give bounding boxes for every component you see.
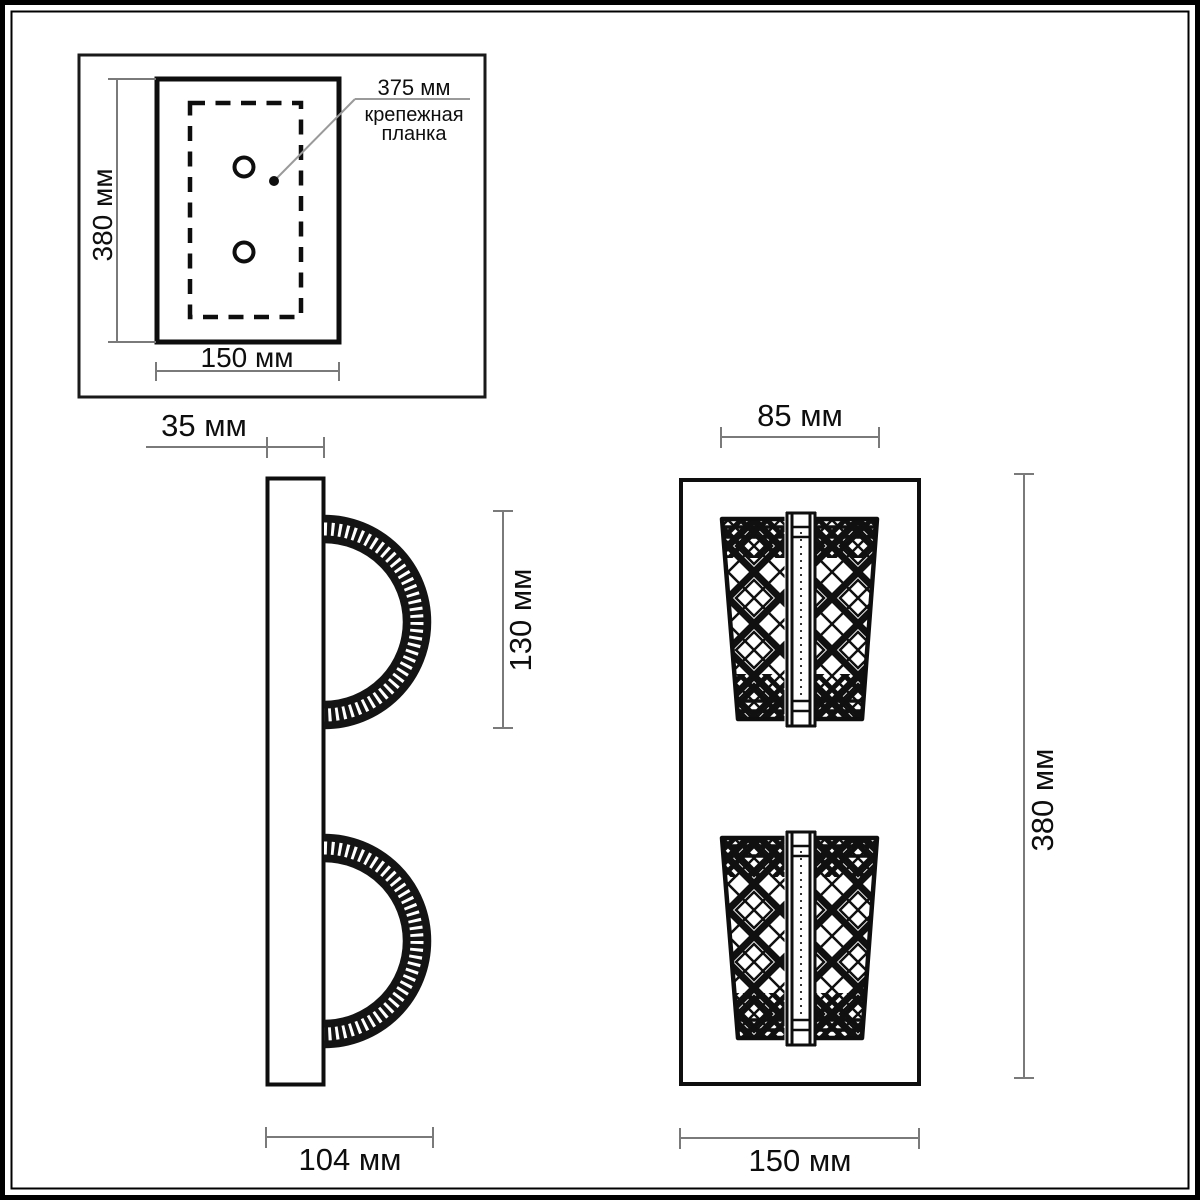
- annotation-leader-dot: [269, 176, 279, 186]
- shade-width-label: 85 мм: [757, 398, 843, 433]
- wall-plate-side-outline: [268, 479, 324, 1085]
- front-view: 85 мм: [680, 398, 1060, 1178]
- front-width-label: 150 мм: [749, 1143, 852, 1178]
- plate-depth-label: 35 мм: [161, 408, 247, 443]
- side-view: 35 мм 130 мм 104 мм: [146, 408, 538, 1177]
- backplate-outline: [157, 79, 339, 342]
- lamp-height-label: 130 мм: [503, 569, 538, 672]
- bracket-length-label: 375 мм: [377, 75, 450, 100]
- total-depth-label: 104 мм: [299, 1142, 402, 1177]
- upper-shade-front: [710, 510, 890, 730]
- upper-lamp-side-ring: [324, 516, 430, 728]
- mount-width-label: 150 мм: [201, 342, 294, 373]
- mount-height-label: 380 мм: [87, 169, 118, 262]
- lower-lamp-side-ring: [324, 835, 430, 1047]
- mount-detail-panel: 380 мм 150 мм 375 мм крепежная планка: [79, 55, 485, 397]
- lower-shade-front: [710, 829, 890, 1049]
- front-height-label: 380 мм: [1025, 749, 1060, 852]
- bracket-caption-line2: планка: [382, 123, 448, 145]
- dimension-drawing-canvas: 380 мм 150 мм 375 мм крепежная планка 35…: [0, 0, 1200, 1200]
- technical-drawing-page: 380 мм 150 мм 375 мм крепежная планка 35…: [0, 0, 1200, 1200]
